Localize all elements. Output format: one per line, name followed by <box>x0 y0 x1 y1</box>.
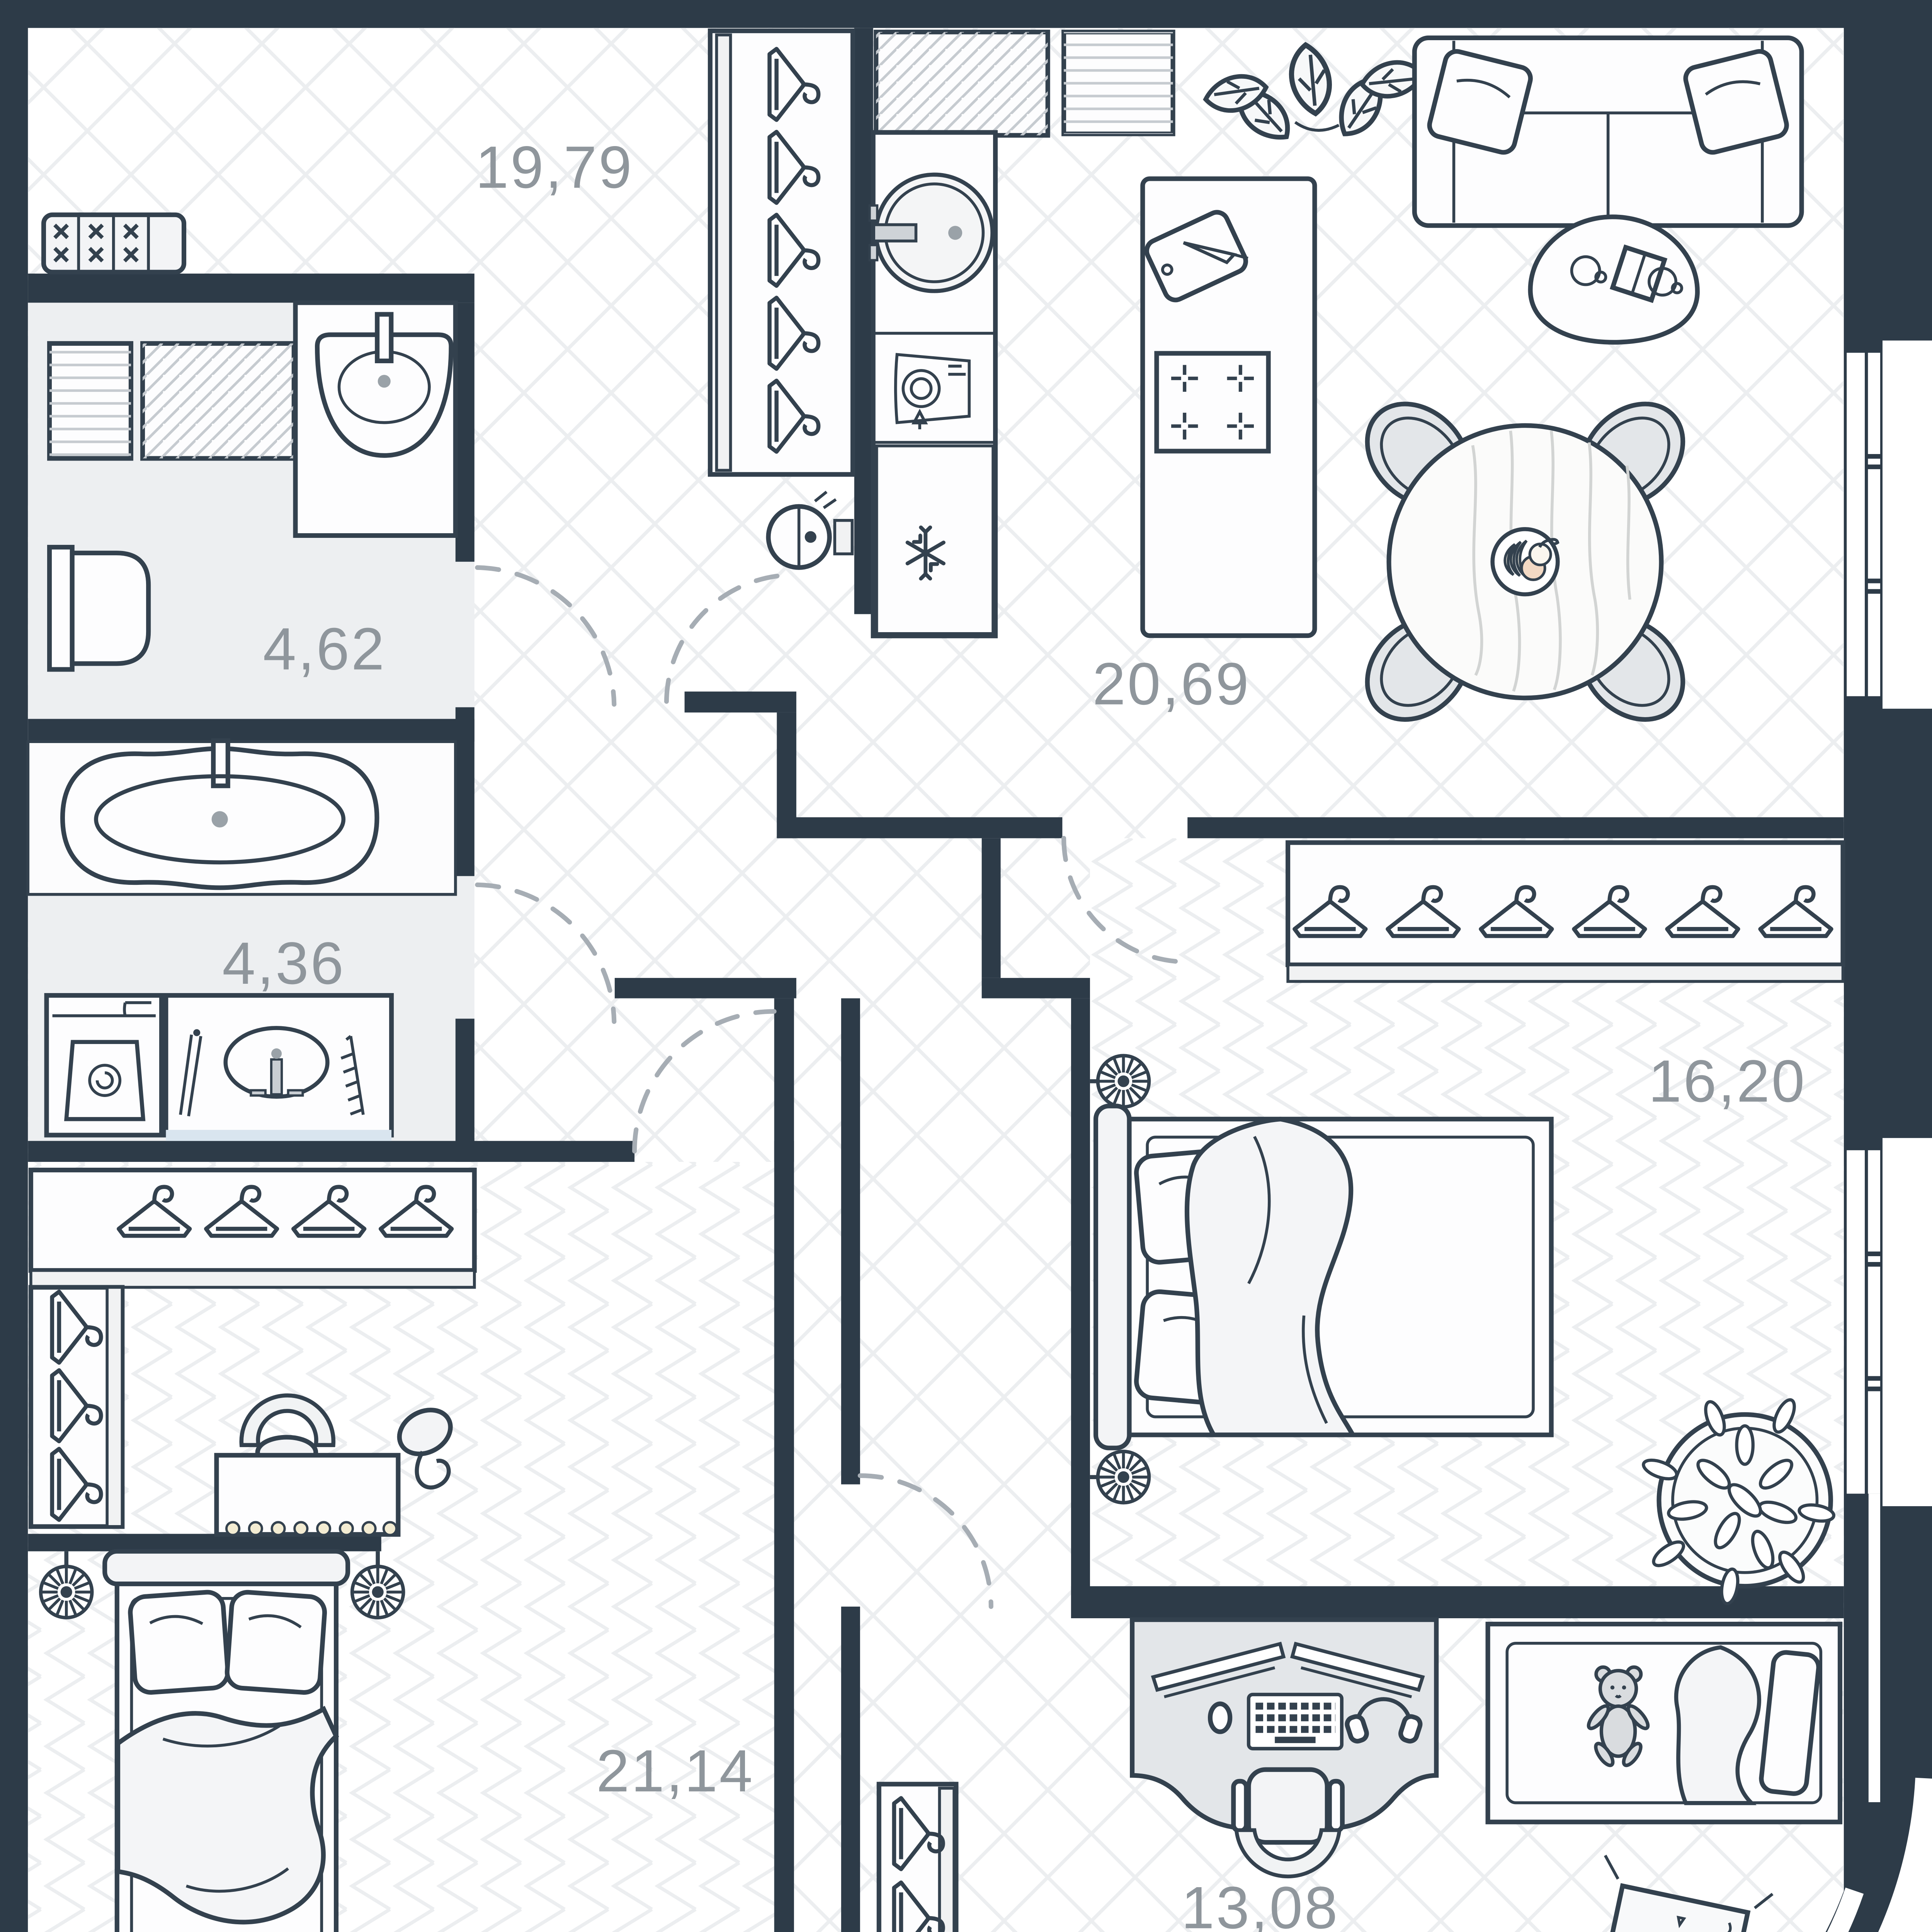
area-label-bathroom-large: 4,36 <box>222 930 345 997</box>
dining-table-icon <box>1389 425 1661 698</box>
area-label-bedroom-right: 16,20 <box>1648 1048 1806 1114</box>
counter-hatched <box>1064 32 1173 134</box>
bench <box>44 215 184 272</box>
sconce-daisy-icon <box>1098 1451 1149 1503</box>
vanity-sink <box>166 995 391 1141</box>
crib-teddy <box>1488 1624 1840 1822</box>
floor-plan: 19,79 4,62 <box>0 0 1932 1932</box>
kitchen-cabinets <box>870 133 995 636</box>
keyboard-icon <box>1248 1694 1342 1748</box>
sconce-daisy-icon <box>352 1566 403 1618</box>
hob-icon <box>1156 353 1268 451</box>
floor-plan-canvas: 19,79 4,62 <box>0 0 1932 1932</box>
area-label-hallway: 19,79 <box>475 134 633 201</box>
mouse-icon <box>1210 1704 1230 1731</box>
counter-hatched <box>876 32 1048 135</box>
sconce-daisy-icon <box>1098 1056 1149 1107</box>
double-bed-icon <box>105 1551 348 1932</box>
kids-closet <box>879 1784 956 1932</box>
wardrobe <box>1288 843 1843 981</box>
sofa-icon <box>1415 38 1802 226</box>
area-label-kitchen-living: 20,69 <box>1092 650 1250 717</box>
sconce-daisy-icon <box>41 1566 92 1618</box>
blanket <box>1187 1119 1353 1435</box>
area-label-kids-room: 13,08 <box>1181 1874 1339 1932</box>
double-bed-icon <box>1096 1106 1551 1448</box>
cabinet-hatched <box>49 344 131 459</box>
area-label-bedroom-left: 21,14 <box>596 1737 754 1804</box>
window-right-living <box>1847 340 1932 709</box>
cabinet-hatched <box>143 344 294 459</box>
area-label-bathroom-small: 4,62 <box>263 615 386 682</box>
toilet-icon <box>49 547 148 669</box>
washing-machine-icon <box>47 995 162 1135</box>
hall-wardrobe <box>710 31 853 474</box>
office-chair-icon <box>1233 1770 1342 1877</box>
kitchen-island <box>1143 179 1315 636</box>
window-right-bedroom <box>1847 1138 1932 1506</box>
dining-set <box>1347 384 1703 740</box>
bathtub-icon <box>63 741 377 888</box>
